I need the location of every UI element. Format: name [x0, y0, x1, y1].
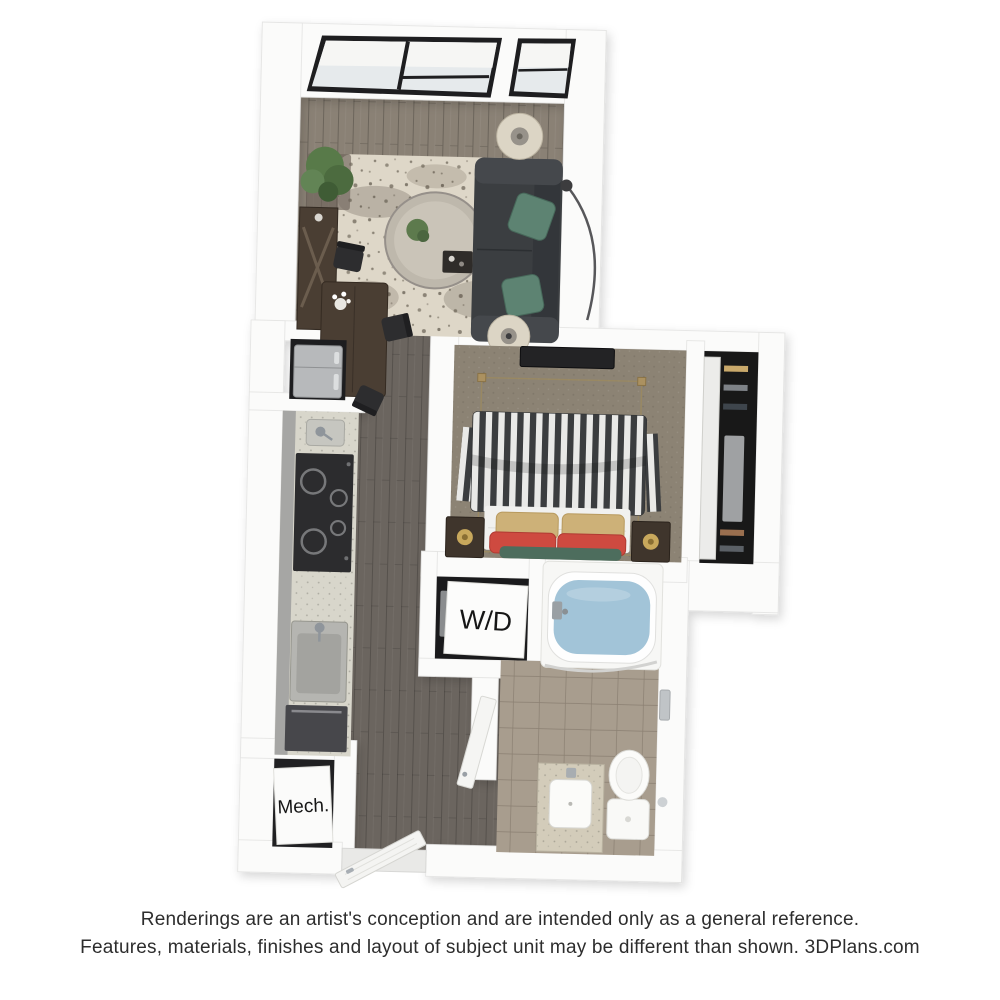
sofa-arm-top — [475, 157, 564, 185]
wall-closet-bottom — [684, 561, 779, 613]
washer-dryer: W/D — [444, 581, 528, 658]
disclaimer-line-2: Features, materials, finishes and layout… — [0, 934, 1000, 962]
window-small-shade — [518, 42, 571, 68]
sofa-pillow — [501, 273, 545, 317]
bedroom-closet — [699, 351, 758, 564]
floor-plan: W/D — [237, 22, 792, 899]
floor-plan-svg: W/D — [0, 0, 1000, 1000]
table-tray — [442, 251, 473, 274]
sofa — [471, 157, 563, 343]
mech-room: Mech. — [272, 759, 335, 848]
prep-sink — [306, 419, 345, 446]
laundry-closet: W/D — [435, 576, 529, 660]
wall-living-left — [255, 22, 303, 341]
dishwasher-handle — [292, 711, 342, 712]
refrigerator-handle — [333, 374, 338, 390]
bed-post — [638, 377, 646, 385]
mech-label: Mech. — [277, 795, 330, 818]
wd-label: W/D — [459, 604, 513, 637]
tub-faucet — [552, 601, 562, 619]
toilet-seat — [616, 757, 643, 794]
kitchen-sink-basin — [296, 633, 341, 694]
dining-chair — [333, 241, 366, 273]
wall-wd-left — [418, 551, 437, 676]
towel-holder — [659, 690, 670, 720]
disclaimer: Renderings are an artist's conception an… — [0, 906, 1000, 962]
tv — [520, 346, 614, 368]
disclaimer-line-1: Renderings are an artist's conception an… — [0, 906, 1000, 934]
floor-plan-rendering: W/D — [0, 0, 1000, 1000]
bedroom — [445, 345, 686, 563]
vanity-faucet — [566, 768, 576, 778]
cooktop — [293, 453, 354, 572]
bed-post — [478, 373, 486, 381]
windows — [307, 32, 576, 100]
refrigerator-handle — [334, 352, 339, 364]
mech-unit: Mech. — [274, 766, 333, 844]
